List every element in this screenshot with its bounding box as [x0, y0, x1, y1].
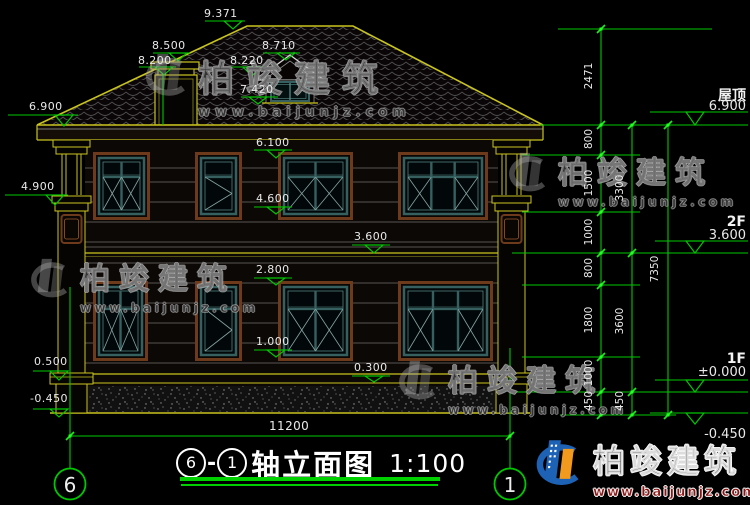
dim-base-top: 0.300	[354, 362, 388, 375]
dim-chimney-base: 8.200	[138, 55, 172, 68]
dim-ground-left: -0.450	[30, 393, 68, 406]
title-underline	[180, 477, 440, 481]
dim-seg-800b: 800	[583, 246, 595, 290]
dim-seg-3300: 3300	[614, 166, 626, 210]
dim-seg-450b: 450	[614, 379, 626, 423]
dim-seg-2471: 2471	[583, 54, 595, 98]
dim-floor2: 3.600	[354, 231, 388, 244]
dim-win2f-sill: 4.600	[256, 193, 290, 206]
level-2f-value: 3.600	[658, 228, 746, 243]
axis-bubble-left: 6	[58, 473, 82, 497]
dim-dormer-peak: 8.710	[262, 40, 296, 53]
axis-bubble-right: 1	[498, 473, 522, 497]
dim-dormer-sill: 7.420	[240, 84, 274, 97]
title-scale: 1:100	[389, 449, 466, 478]
dim-total-width: 11200	[269, 420, 309, 434]
dim-win1f-top: 2.800	[256, 264, 290, 277]
dim-capital-left: 4.900	[21, 181, 55, 194]
level-ground-value: -0.450	[658, 427, 746, 442]
dim-plinth-left: 0.500	[34, 356, 68, 369]
dim-win1f-sill: 1.000	[256, 336, 290, 349]
dim-eave-left: 6.900	[29, 101, 63, 114]
title-underline-2	[181, 484, 438, 486]
dim-dormer-eave: 8.220	[230, 55, 264, 68]
level-1f-value: ±0.000	[658, 365, 746, 380]
dim-seg-7350: 7350	[649, 247, 661, 291]
title-axis-to: 1	[217, 448, 247, 478]
title-axis-from: 6	[176, 448, 206, 478]
dim-seg-1800: 1800	[583, 298, 595, 342]
dim-seg-3600: 3600	[614, 299, 626, 343]
dim-chimney-top: 8.500	[152, 40, 186, 53]
dim-seg-800a: 800	[583, 117, 595, 161]
cad-elevation-canvas: 柏竣建筑 www.baijunjz.com 柏竣建筑 www.baijunjz.…	[0, 0, 750, 505]
dim-seg-1500: 1500	[583, 161, 595, 205]
level-roof-value: 6.900	[658, 99, 746, 114]
elevation-linework	[0, 0, 750, 505]
dim-seg-450a: 450	[583, 379, 595, 423]
title-separator: -	[207, 451, 216, 476]
dim-ridge: 9.371	[204, 8, 238, 21]
dim-win2f-top: 6.100	[256, 137, 290, 150]
